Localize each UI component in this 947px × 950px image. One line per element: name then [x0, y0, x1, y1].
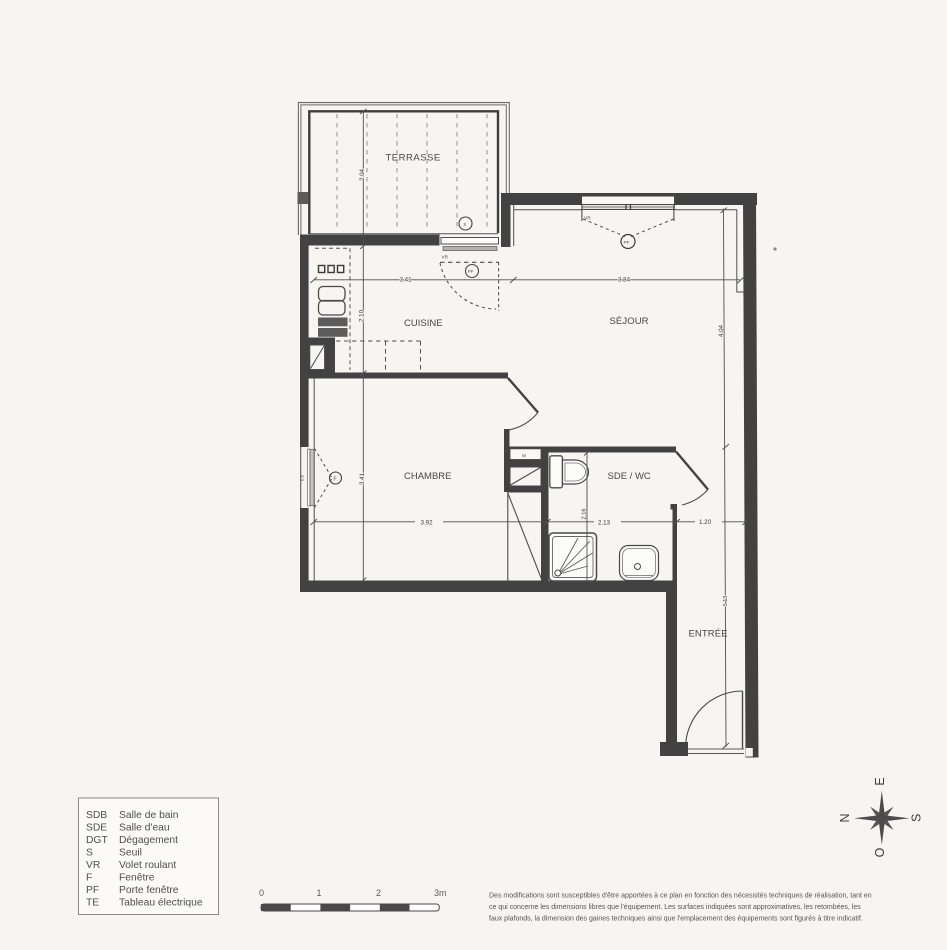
svg-text:3.41: 3.41 — [359, 472, 366, 485]
svg-text:F: F — [334, 477, 337, 483]
svg-text:2.13: 2.13 — [598, 519, 611, 526]
svg-text:Des modifications sont suscept: Des modifications sont susceptibles d'êt… — [489, 893, 872, 900]
svg-text:2: 2 — [376, 888, 381, 898]
svg-text:S: S — [909, 814, 923, 822]
svg-text:3.41: 3.41 — [400, 276, 413, 283]
svg-text:0.6: 0.6 — [300, 474, 305, 481]
svg-text:E: E — [873, 777, 887, 785]
svg-text:DGT: DGT — [86, 835, 108, 846]
svg-text:SÉJOUR: SÉJOUR — [610, 316, 649, 327]
svg-text:VR: VR — [442, 255, 449, 260]
svg-text:Seuil: Seuil — [119, 848, 142, 859]
svg-text:2.16: 2.16 — [582, 509, 588, 520]
svg-text:SDE: SDE — [86, 823, 107, 834]
svg-text:Fenêtre: Fenêtre — [119, 873, 155, 884]
svg-text:SDE / WC: SDE / WC — [608, 471, 651, 482]
svg-text:PF: PF — [624, 240, 630, 245]
svg-text:S: S — [86, 848, 93, 859]
svg-text:2.04: 2.04 — [359, 168, 366, 181]
svg-text:Porte fenêtre: Porte fenêtre — [119, 885, 179, 896]
svg-text:Dégagement: Dégagement — [119, 835, 178, 846]
svg-text:3.92: 3.92 — [421, 519, 434, 526]
svg-text:3.84: 3.84 — [618, 276, 631, 283]
svg-text:0: 0 — [259, 888, 264, 898]
svg-text:Volet roulant: Volet roulant — [119, 860, 176, 871]
svg-text:VR: VR — [86, 860, 100, 871]
svg-text:PF: PF — [86, 885, 99, 896]
svg-text:O: O — [873, 847, 887, 857]
svg-text:Salle de bain: Salle de bain — [119, 810, 179, 821]
svg-text:Salle d'eau: Salle d'eau — [119, 823, 170, 834]
svg-text:4.04: 4.04 — [718, 324, 725, 337]
svg-text:CHAMBRE: CHAMBRE — [404, 471, 452, 482]
svg-text:ce qui concerne les dimensions: ce qui concerne les dimensions libres qu… — [489, 904, 861, 911]
svg-text:CUISINE: CUISINE — [404, 318, 443, 329]
svg-text:N: N — [838, 813, 852, 822]
svg-text:Tableau électrique: Tableau électrique — [119, 898, 203, 909]
svg-text:SDB: SDB — [86, 810, 107, 821]
svg-text:VR: VR — [584, 216, 591, 222]
svg-text:F: F — [86, 873, 92, 884]
svg-text:5.13: 5.13 — [723, 596, 729, 607]
svg-text:1.20: 1.20 — [699, 519, 712, 526]
svg-text:TERRASSE: TERRASSE — [386, 153, 441, 164]
svg-text:faux plafonds, la dimension de: faux plafonds, la dimension des gaines t… — [489, 916, 863, 923]
svg-text:1: 1 — [317, 888, 322, 898]
svg-text:ENTRÉE: ENTRÉE — [689, 629, 728, 640]
svg-text:3m: 3m — [434, 888, 447, 898]
svg-text:TE: TE — [86, 898, 99, 909]
svg-text:PF: PF — [468, 269, 474, 274]
svg-text:2.10: 2.10 — [359, 309, 366, 322]
svg-text:te: te — [522, 453, 526, 459]
